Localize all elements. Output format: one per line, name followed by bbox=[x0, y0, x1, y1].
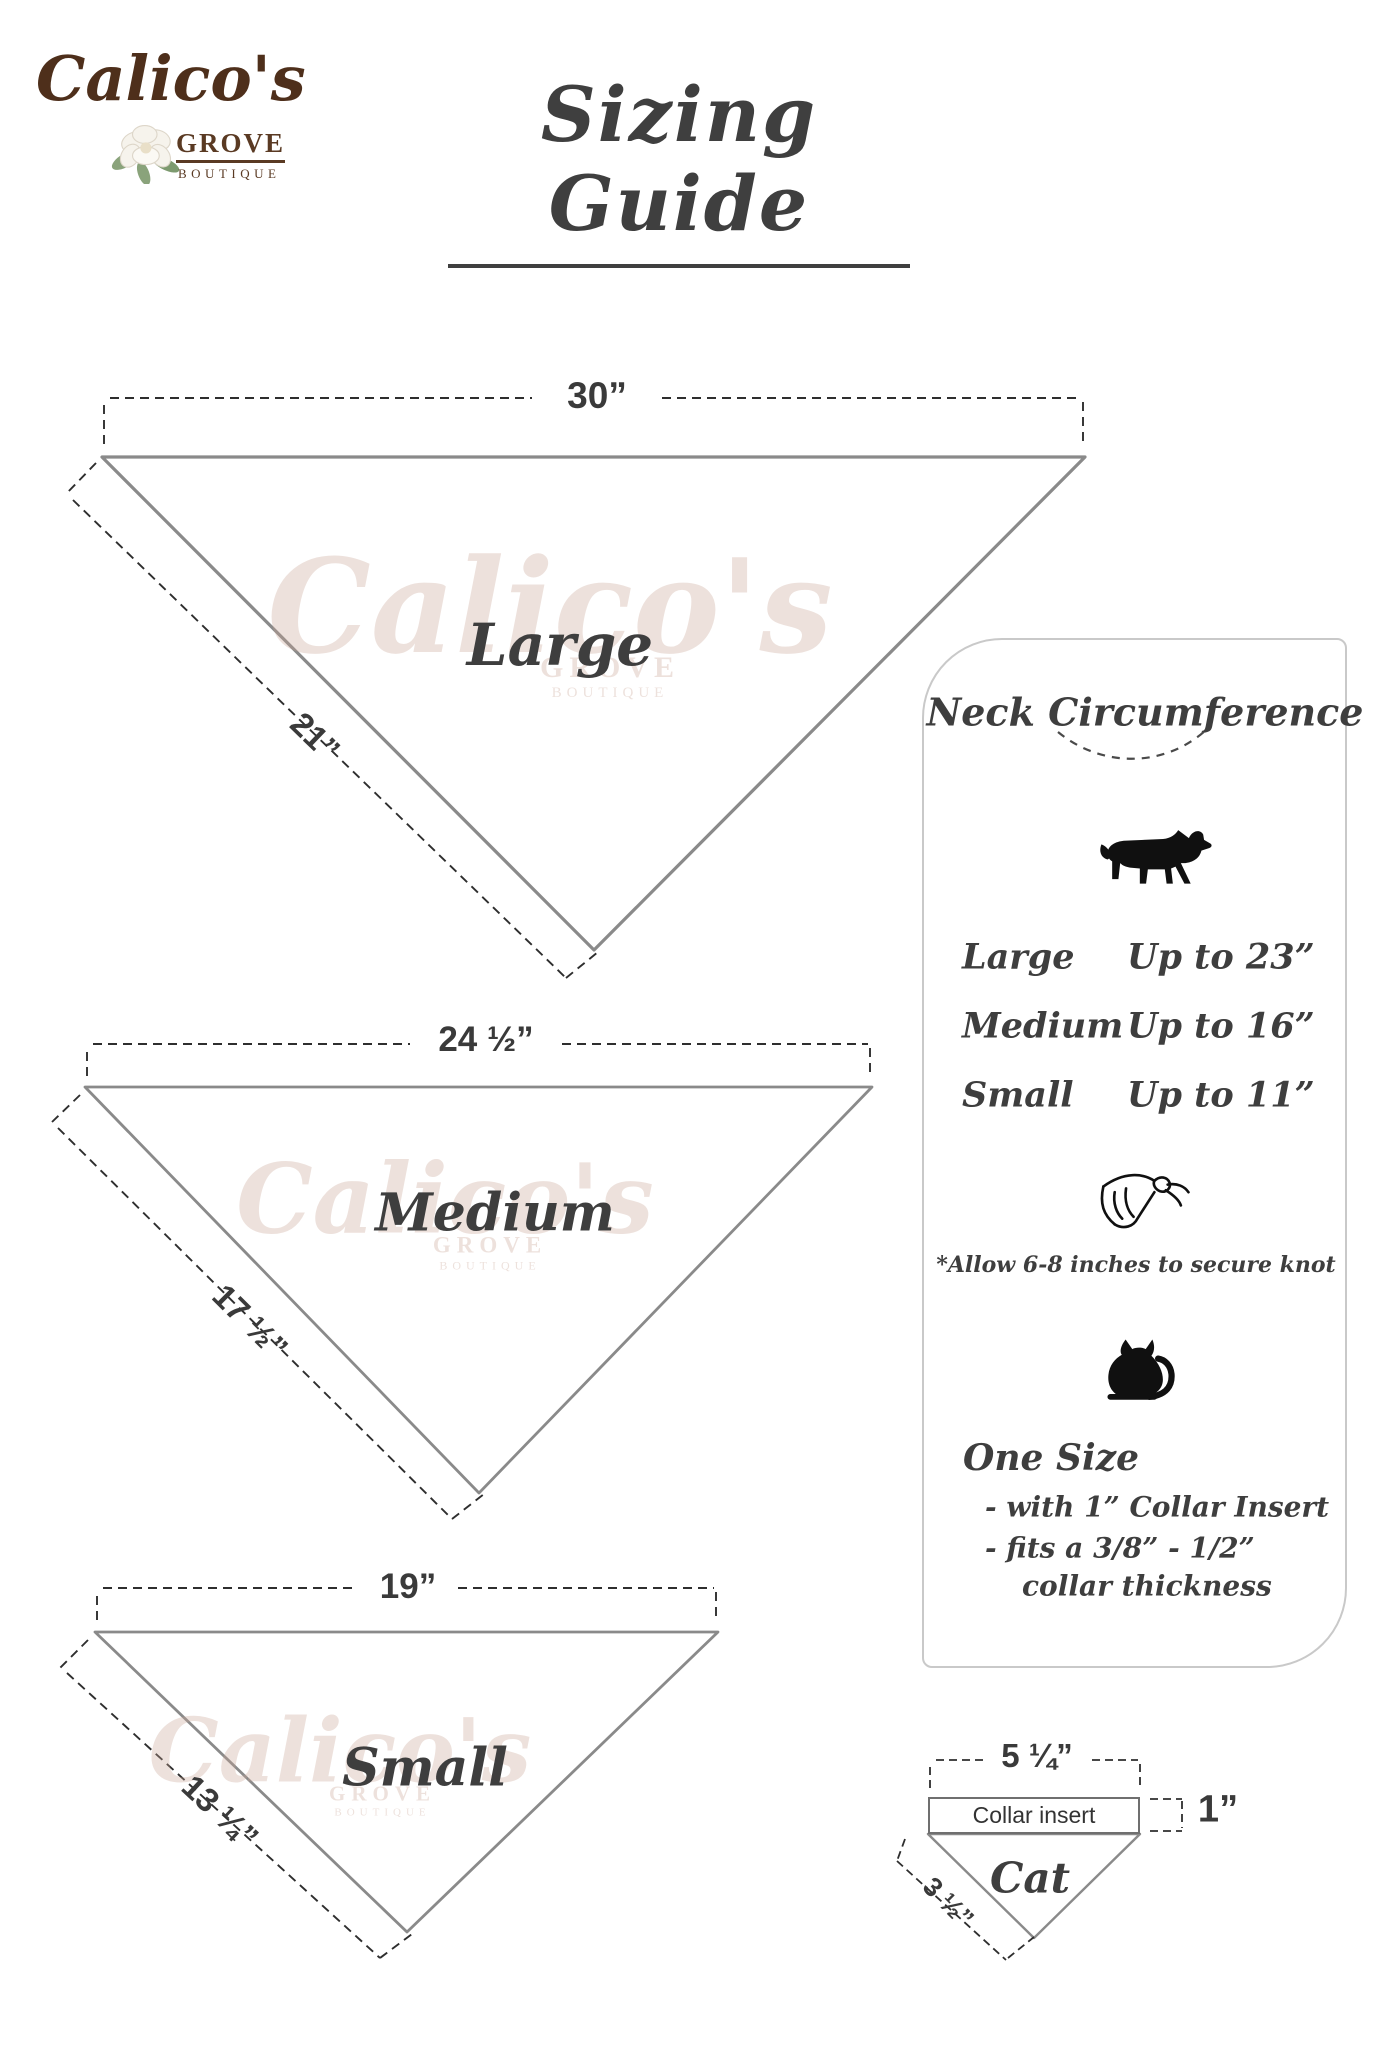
cat-triangle-label: Cat bbox=[990, 1854, 1070, 1903]
logo-brand-name: Calico's bbox=[36, 42, 306, 115]
page-title: Sizing Guide bbox=[448, 70, 910, 268]
collar-insert-label: Collar insert bbox=[973, 1802, 1096, 1829]
logo-boutique-text: BOUTIQUE bbox=[178, 166, 280, 182]
one-size-line2: - fits a 3/8” - 1/2” bbox=[985, 1532, 1255, 1565]
logo-grove-text: GROVE bbox=[176, 128, 285, 163]
logo-flower-icon bbox=[108, 114, 186, 184]
cat-insert-height-label: 1” bbox=[1198, 1789, 1238, 1832]
row-medium-value: Up to 16” bbox=[1127, 1006, 1315, 1047]
small-triangle-label: Small bbox=[342, 1738, 508, 1799]
bandana-knot-icon bbox=[1092, 1162, 1196, 1246]
medium-triangle-label: Medium bbox=[375, 1183, 615, 1244]
medium-bandana-triangle bbox=[85, 1087, 872, 1493]
row-small-size: Small bbox=[962, 1075, 1074, 1116]
one-size-line1: - with 1” Collar Insert bbox=[985, 1491, 1329, 1524]
large-triangle-label: Large bbox=[467, 611, 653, 679]
dog-icon bbox=[1097, 822, 1213, 906]
sizing-guide-poster: Calico's GROVE BOUTIQUE Sizing Guide Cal… bbox=[0, 0, 1376, 2060]
cat-insert-height-dimension-line bbox=[1150, 1799, 1182, 1831]
knot-allowance-note: *Allow 6-8 inches to secure knot bbox=[936, 1252, 1335, 1278]
row-medium-size: Medium bbox=[962, 1006, 1123, 1047]
cat-icon bbox=[1096, 1332, 1182, 1412]
small-width-label: 19” bbox=[380, 1567, 436, 1607]
large-width-label: 30” bbox=[567, 375, 627, 417]
collar-insert-box: Collar insert bbox=[928, 1797, 1140, 1834]
one-size-line3: collar thickness bbox=[1022, 1570, 1272, 1603]
one-size-heading: One Size bbox=[963, 1437, 1139, 1479]
cat-width-label: 5 ¼” bbox=[1001, 1737, 1073, 1775]
row-small-value: Up to 11” bbox=[1127, 1075, 1315, 1116]
medium-width-label: 24 ½” bbox=[438, 1020, 533, 1060]
panel-title-underline-arc bbox=[1052, 726, 1212, 770]
row-large-value: Up to 23” bbox=[1127, 937, 1315, 978]
row-large-size: Large bbox=[962, 937, 1074, 978]
